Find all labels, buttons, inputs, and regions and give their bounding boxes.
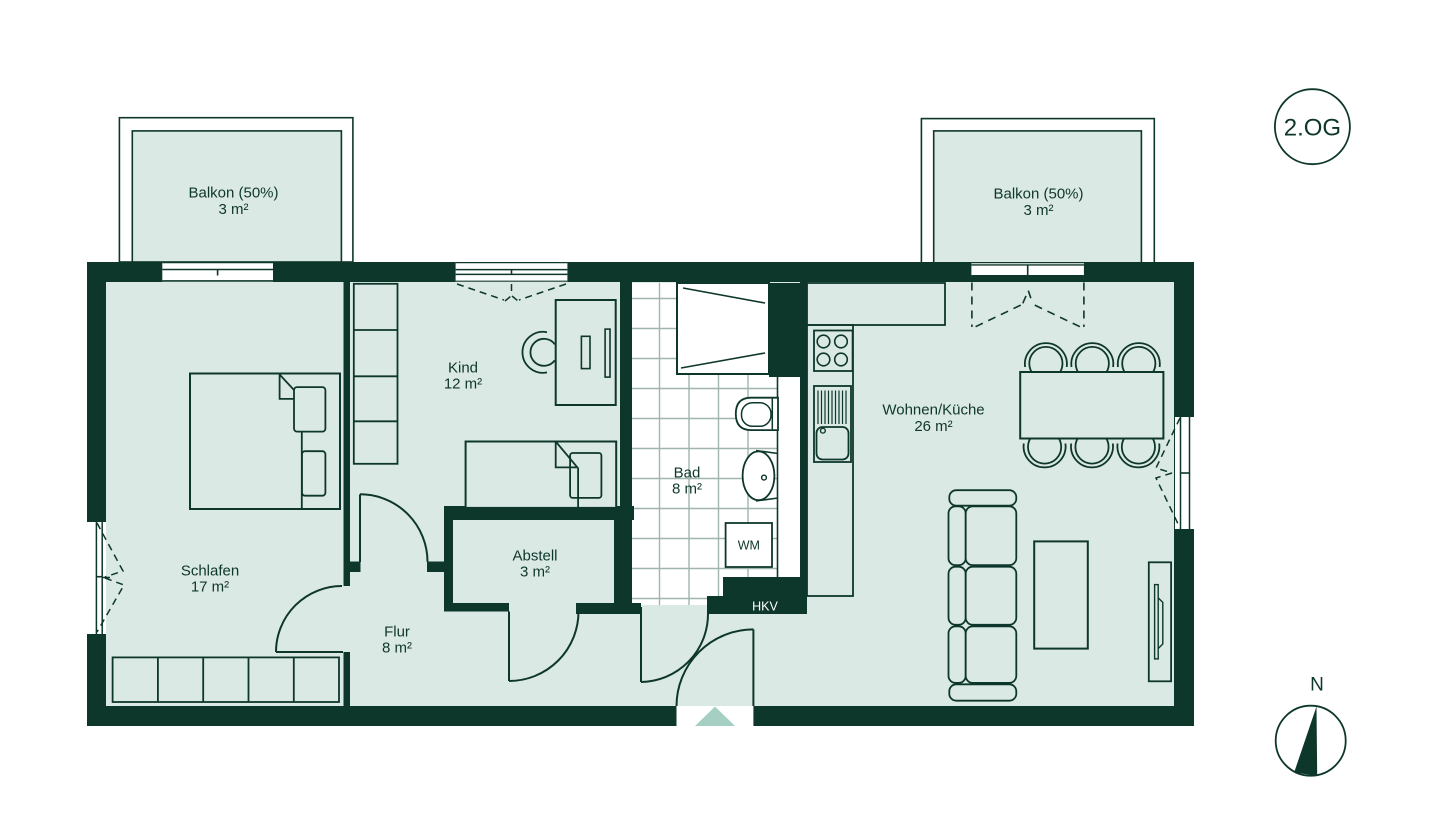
svg-text:Balkon (50%): Balkon (50%) — [993, 186, 1083, 203]
svg-text:Balkon (50%): Balkon (50%) — [188, 185, 278, 202]
svg-text:8 m²: 8 m² — [382, 640, 412, 657]
svg-text:N: N — [1310, 675, 1324, 696]
svg-text:Abstell: Abstell — [512, 548, 557, 565]
svg-text:Bad: Bad — [674, 465, 701, 482]
svg-text:HKV: HKV — [752, 600, 778, 614]
svg-text:Flur: Flur — [384, 624, 410, 641]
svg-text:Kind: Kind — [448, 360, 478, 377]
svg-text:3 m²: 3 m² — [520, 564, 550, 581]
svg-text:26 m²: 26 m² — [914, 418, 952, 435]
svg-text:2.OG: 2.OG — [1284, 115, 1341, 142]
svg-text:8 m²: 8 m² — [672, 481, 702, 498]
svg-text:WM: WM — [738, 539, 760, 553]
svg-text:Wohnen/Küche: Wohnen/Küche — [882, 402, 984, 419]
svg-text:17 m²: 17 m² — [191, 579, 229, 596]
svg-text:Schlafen: Schlafen — [181, 563, 239, 580]
svg-text:3 m²: 3 m² — [219, 201, 249, 218]
svg-text:3 m²: 3 m² — [1024, 202, 1054, 219]
svg-text:12 m²: 12 m² — [444, 376, 482, 393]
